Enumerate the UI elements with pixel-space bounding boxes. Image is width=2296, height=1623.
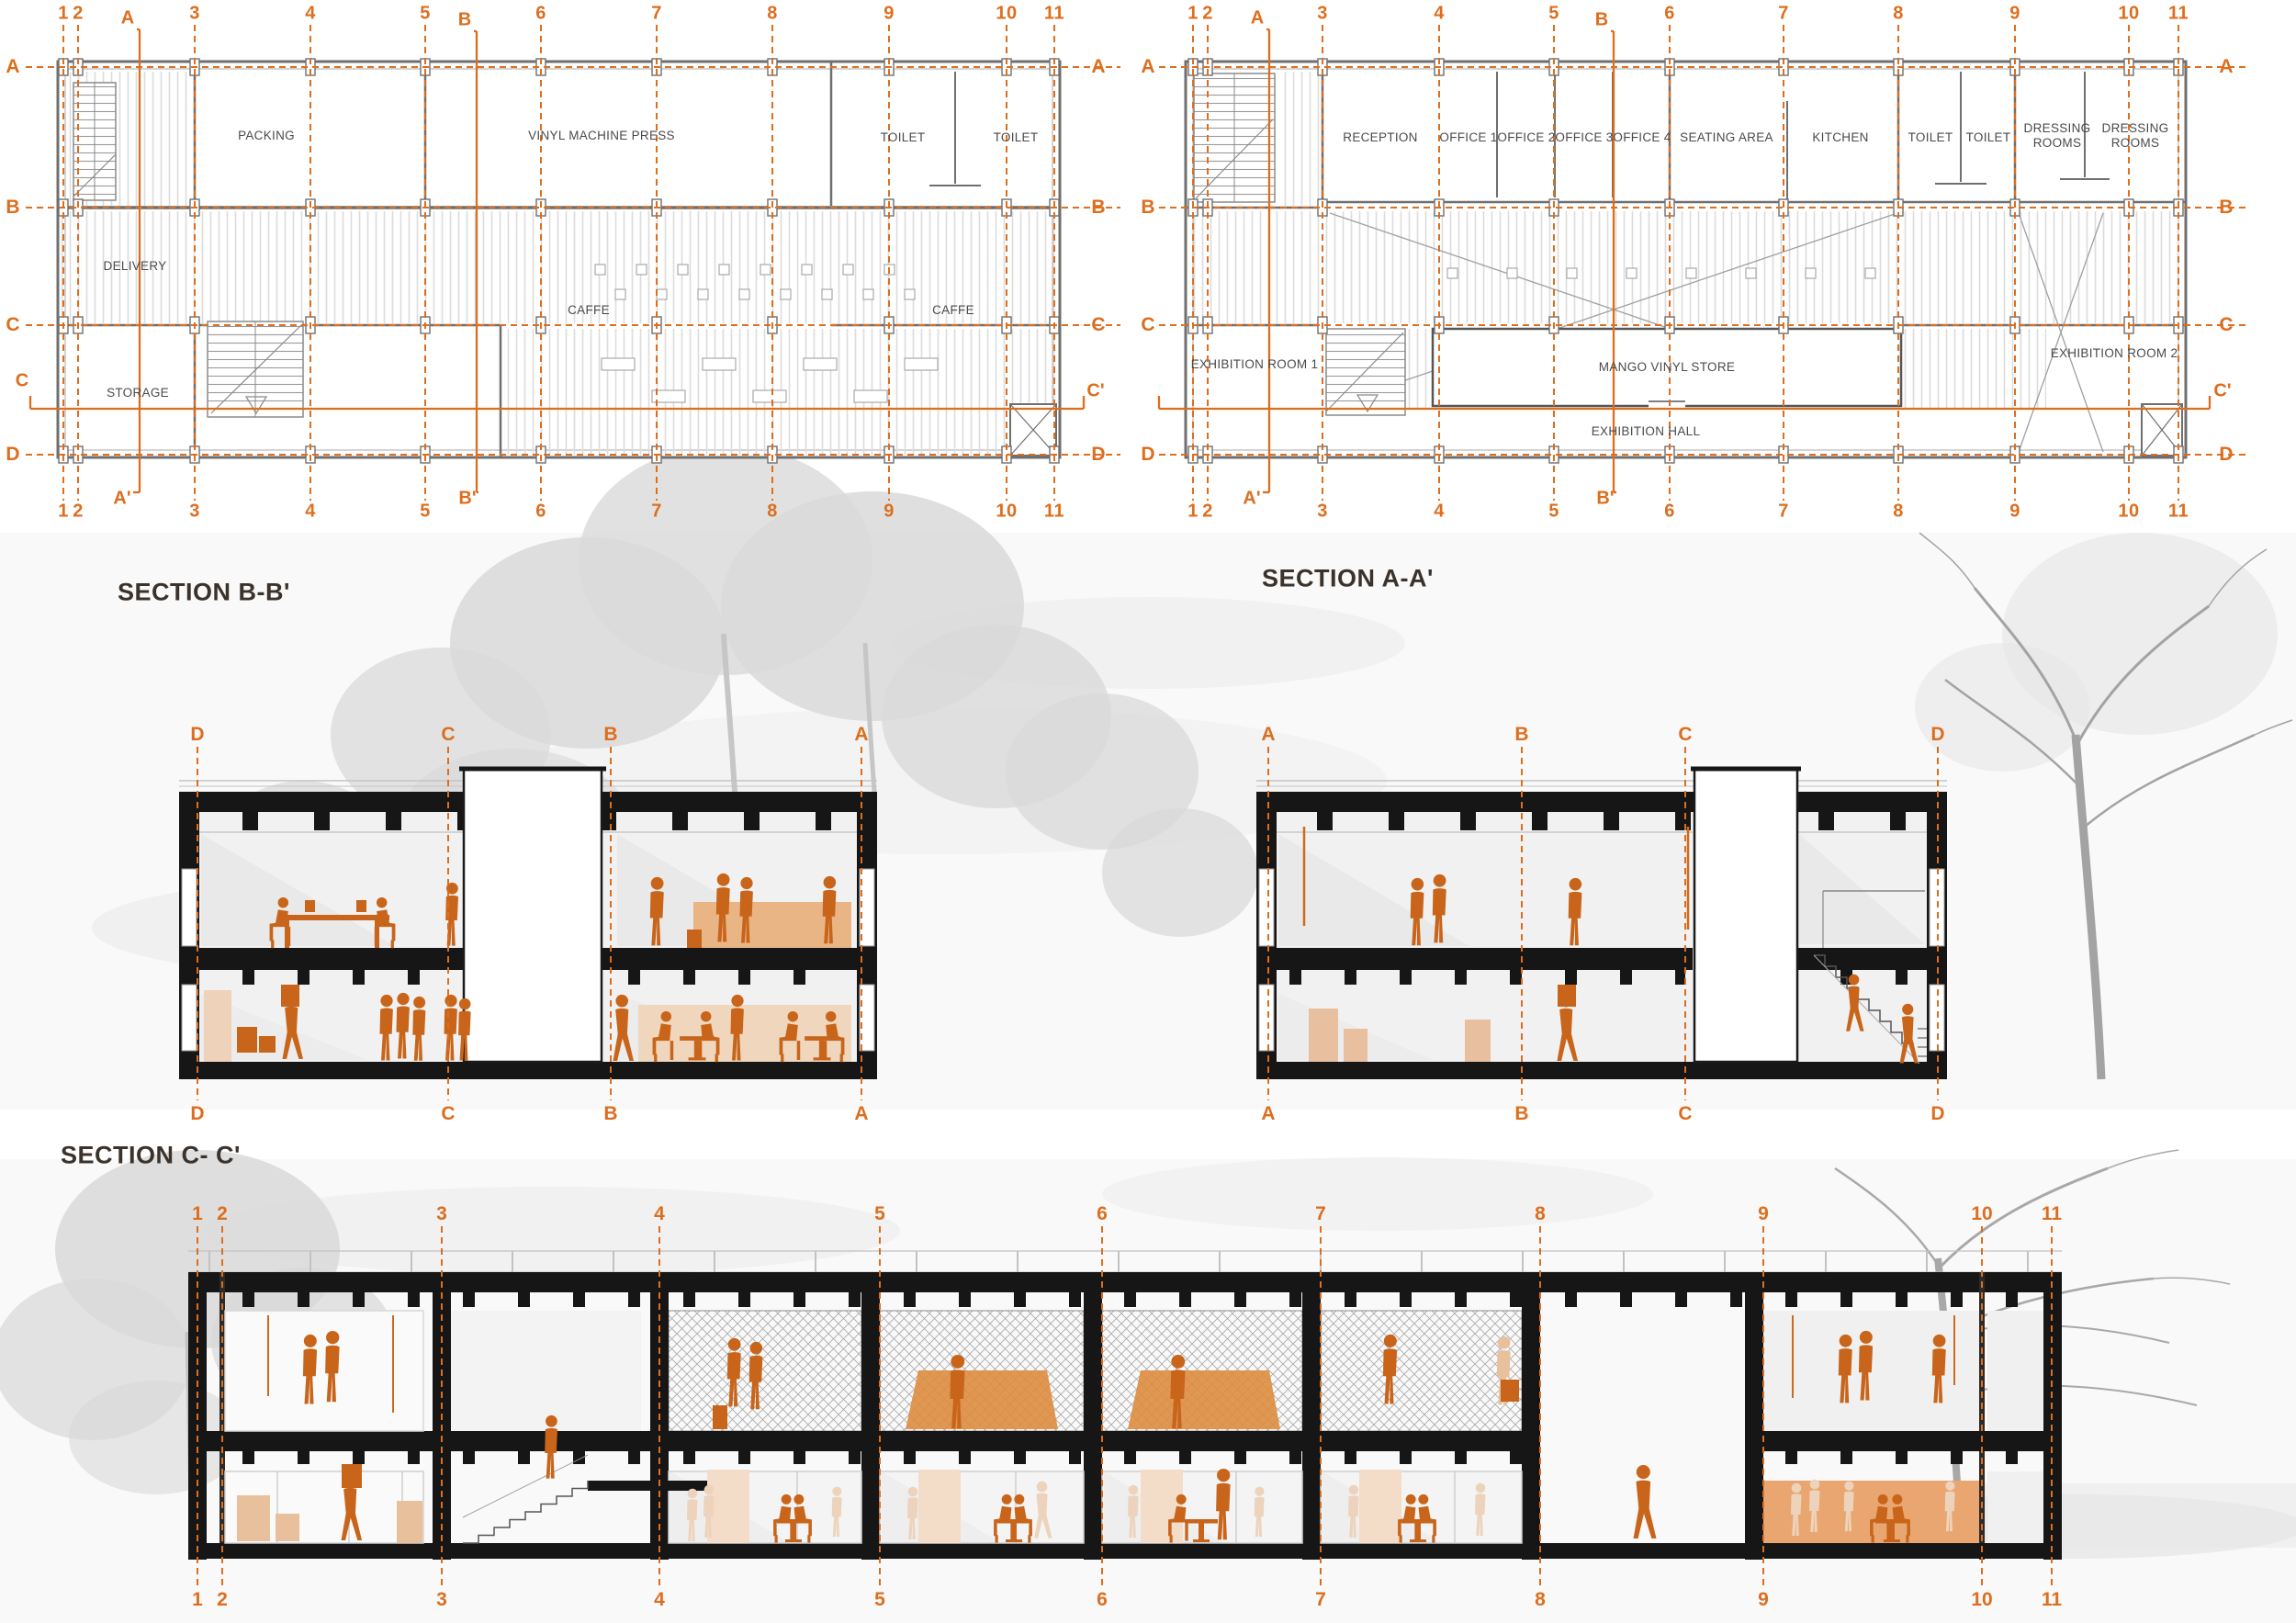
mango-store-outline — [1433, 329, 1901, 408]
stair-lower-center — [208, 321, 303, 417]
floor-plan-left-linework — [58, 62, 1060, 457]
drawing-artwork — [0, 0, 2296, 1623]
section-bb-linework — [179, 769, 877, 1079]
stair-upper-left — [73, 83, 116, 200]
stair-upper-left-right-plan — [1194, 73, 1275, 202]
floor-plan-right-linework — [1186, 62, 2186, 457]
stair-lower-left-right-plan — [1326, 329, 1405, 415]
section-aa-linework — [1256, 769, 1947, 1079]
architectural-sheet: 11223344556677889910101111AABBCCDDAA'BB'… — [0, 0, 2296, 1623]
